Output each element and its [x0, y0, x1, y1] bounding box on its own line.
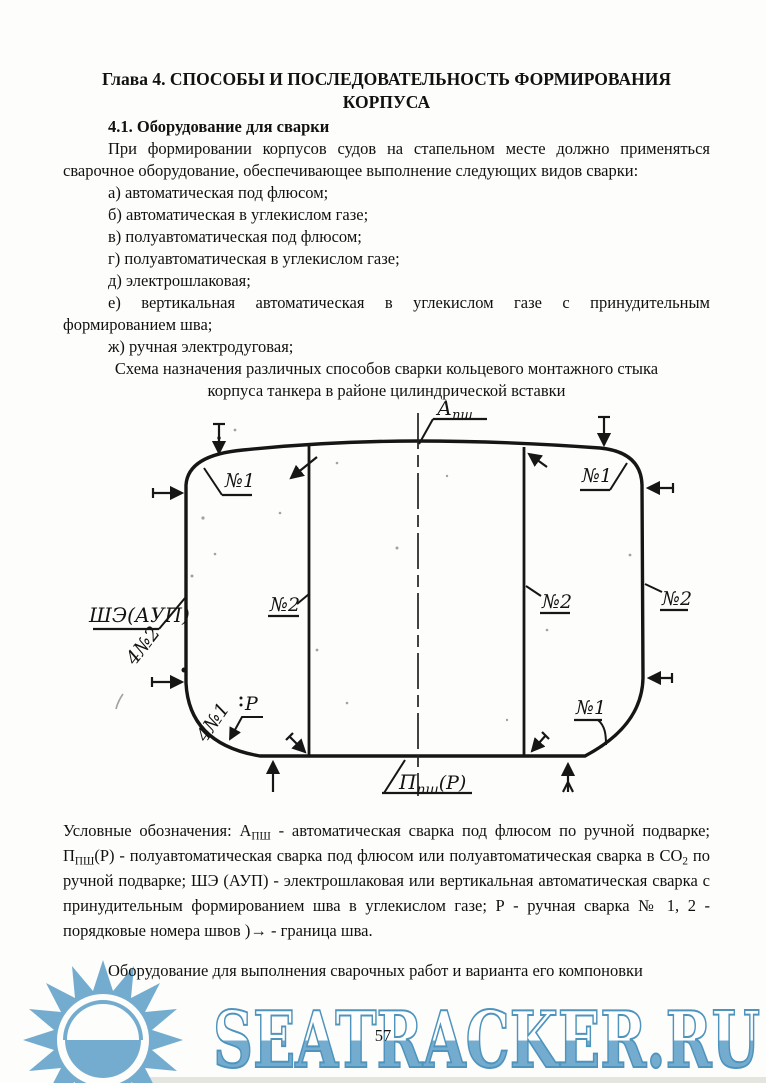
figure-diagram: Апш №1 №1 ШЭ(АУП) 4№2 №2 [63, 398, 710, 816]
diagram-label-she-aup: ШЭ(АУП) [88, 603, 190, 627]
diagram-label-n1-bottom-right: №1 [575, 697, 606, 719]
section-heading: 4.1. Оборудование для сварки [63, 116, 710, 138]
closing-paragraph: Оборудование для выполнения сварочных ра… [63, 960, 710, 982]
chapter-title-line2: КОРПУСА [63, 91, 710, 114]
list-item-b: б) автоматическая в углекислом газе; [63, 204, 710, 226]
diagram-label-n2-edge: №2 [661, 588, 692, 610]
list-item-d: д) электрошлаковая; [63, 270, 710, 292]
list-item-a: а) автоматическая под флюсом; [63, 182, 710, 204]
list-item-zh: ж) ручная электродуговая; [63, 336, 710, 358]
figure-caption: Схема назначения различных способов свар… [87, 358, 687, 402]
diagram-label-n1-top-left: №1 [224, 470, 255, 492]
legend-text-1: Условные обозначения: А [63, 821, 251, 840]
chapter-title-line1: Глава 4. СПОСОБЫ И ПОСЛЕДОВАТЕЛЬНОСТЬ ФО… [63, 68, 710, 91]
list-item-e: е) вертикальная автоматическая в углекис… [63, 292, 710, 336]
legend-text-3: (Р) - полуавтоматическая сварка под флюс… [94, 846, 682, 865]
page-content: Глава 4. СПОСОБЫ И ПОСЛЕДОВАТЕЛЬНОСТЬ ФО… [0, 0, 766, 982]
diagram-label-r: Р [244, 693, 259, 715]
diagram-label-n2-right: №2 [541, 591, 572, 613]
document-page: Глава 4. СПОСОБЫ И ПОСЛЕДОВАТЕЛЬНОСТЬ ФО… [0, 0, 766, 1083]
diagram-label-n1-top-right: №1 [581, 465, 612, 487]
page-number: 57 [0, 1026, 766, 1046]
legend-sub-psh-2: ПШ [75, 855, 94, 867]
scan-noise [116, 429, 631, 722]
legend-paragraph: Условные обозначения: АПШ - автоматическ… [63, 818, 710, 943]
hull-weld-diagram: Апш №1 №1 ШЭ(АУП) 4№2 №2 [85, 398, 725, 816]
legend-sub-psh-1: ПШ [251, 830, 270, 842]
list-item-g: г) полуавтоматическая в углекислом газе; [63, 248, 710, 270]
list-item-v: в) полуавтоматическая под флюсом; [63, 226, 710, 248]
intro-paragraph: При формировании корпусов судов на стапе… [63, 138, 710, 182]
diagram-label-n2-left: №2 [269, 594, 300, 616]
